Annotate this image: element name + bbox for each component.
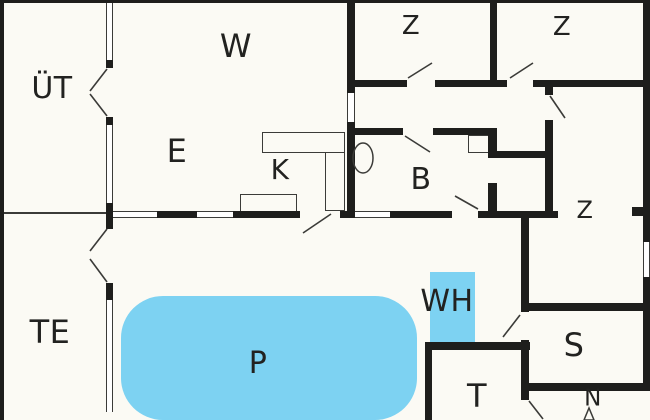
window: [113, 211, 157, 218]
door-swing: [303, 214, 331, 233]
door-swing: [90, 94, 107, 116]
window: [197, 211, 233, 218]
wall: [106, 203, 113, 229]
door-swing: [455, 196, 478, 209]
wall: [0, 0, 4, 420]
pool-area: [121, 296, 417, 420]
wall: [347, 122, 355, 218]
room-label-p: P: [249, 349, 268, 379]
washbasin-icon: [353, 143, 373, 173]
floor-plan: ÜT W Z Z E K B Z TE P WH S T N: [0, 0, 650, 420]
wall: [490, 0, 497, 83]
wall: [488, 151, 553, 158]
wall: [425, 342, 432, 420]
wall: [157, 211, 197, 218]
wall: [545, 120, 553, 218]
door-swing: [90, 259, 107, 282]
door-swing: [90, 229, 107, 251]
room-label-w: W: [220, 30, 252, 62]
window: [106, 3, 113, 60]
room-label-s: S: [564, 329, 585, 361]
room-label-t: T: [467, 380, 487, 412]
wall: [435, 80, 507, 87]
wall: [643, 0, 650, 391]
room-label-uet: ÜT: [31, 74, 72, 104]
door-swing: [510, 63, 533, 78]
wall: [106, 283, 113, 300]
wall: [347, 80, 407, 87]
wall-opening: [347, 93, 355, 122]
door-swing: [550, 96, 565, 118]
window: [106, 300, 113, 412]
kitchen-counter: [325, 152, 345, 211]
wall: [522, 303, 650, 311]
kitchen-counter: [262, 132, 345, 153]
wall: [390, 211, 452, 218]
window: [106, 125, 113, 203]
room-label-z1: Z: [402, 13, 420, 39]
wall: [106, 60, 113, 68]
wall: [347, 128, 403, 135]
door-swing: [405, 136, 430, 152]
wall: [0, 0, 650, 3]
wall-stub: [632, 207, 643, 216]
door-swing: [503, 315, 520, 337]
kitchen-counter: [240, 194, 297, 212]
door-swing: [408, 63, 432, 78]
wall: [433, 128, 497, 135]
wall: [106, 117, 113, 125]
room-label-wh: WH: [420, 287, 473, 317]
door-swing: [529, 401, 543, 419]
room-label-e: E: [167, 135, 188, 167]
room-label-z2: Z: [553, 14, 571, 40]
door-swing: [90, 69, 107, 91]
window: [355, 211, 390, 218]
compass-label: N: [584, 388, 602, 411]
terrace-divider-line: [4, 212, 106, 214]
wall: [340, 211, 355, 218]
room-label-k: K: [271, 156, 290, 184]
wall: [478, 211, 558, 218]
wall: [425, 342, 530, 350]
room-label-z3: Z: [577, 198, 594, 222]
room-label-te: TE: [30, 316, 71, 348]
room-label-b: B: [410, 165, 431, 195]
window: [643, 242, 650, 277]
wall: [233, 211, 300, 218]
wall: [521, 211, 529, 312]
wall: [533, 80, 650, 87]
